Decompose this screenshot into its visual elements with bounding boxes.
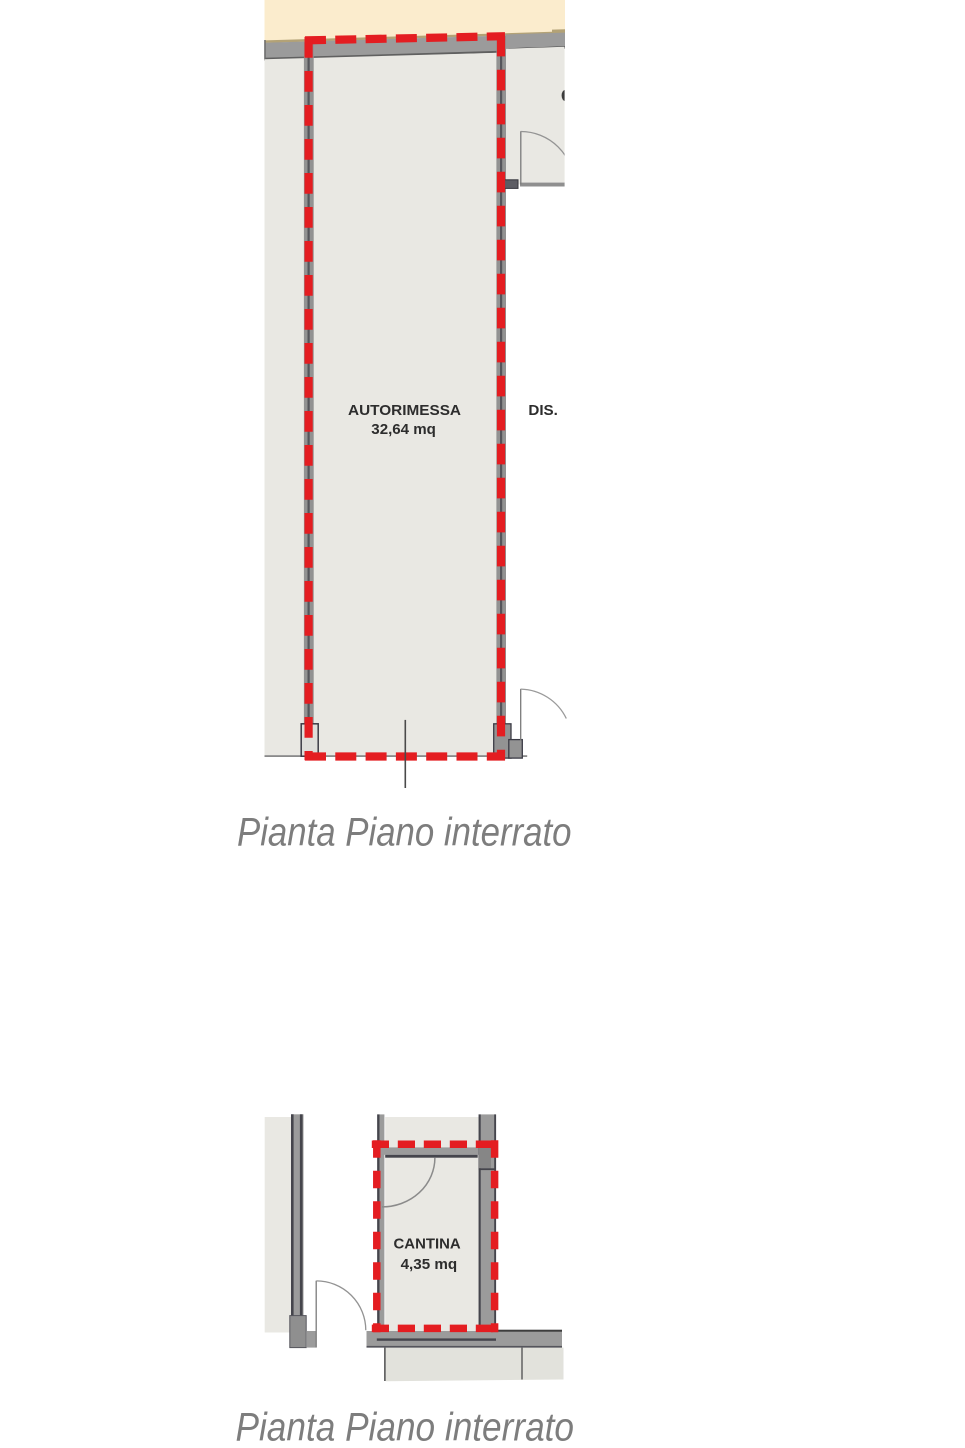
svg-text:CANTINA: CANTINA [394, 1236, 461, 1253]
svg-text:32,64 mq: 32,64 mq [371, 421, 436, 438]
svg-text:Pianta Piano interrato: Pianta Piano interrato [237, 811, 572, 855]
svg-text:DIS.: DIS. [528, 402, 558, 419]
svg-text:4,35 mq: 4,35 mq [401, 1256, 458, 1273]
svg-text:Pianta Piano interrato: Pianta Piano interrato [236, 1406, 575, 1448]
svg-text:AUTORIMESSA: AUTORIMESSA [348, 402, 461, 419]
